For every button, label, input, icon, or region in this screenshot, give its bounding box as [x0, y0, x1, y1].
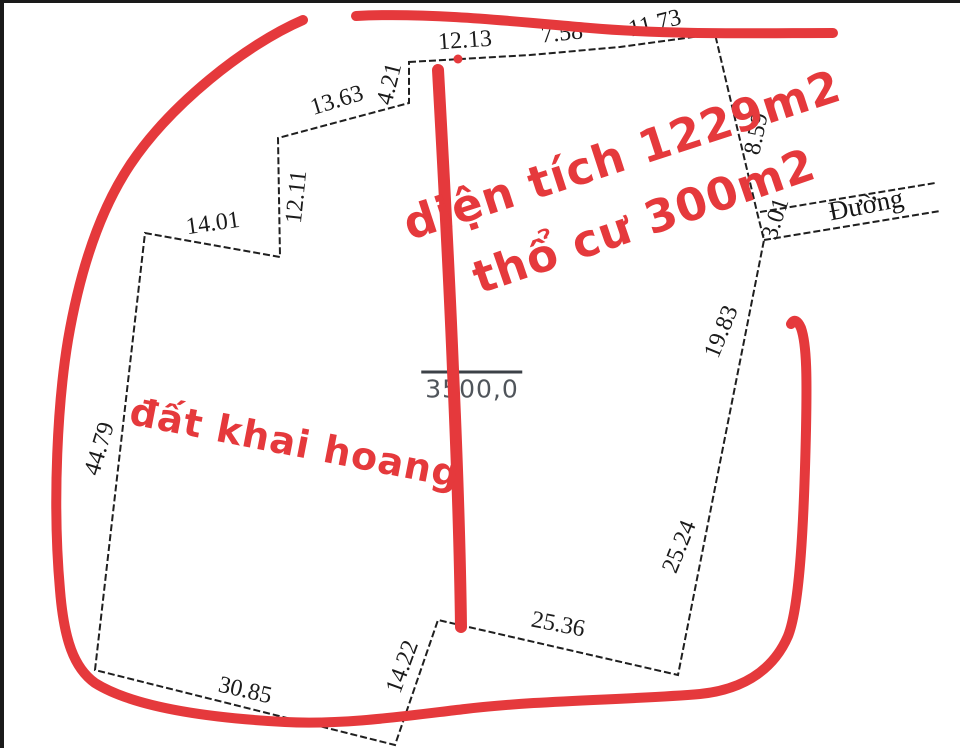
parcel-area-label: 3500,0	[421, 371, 522, 404]
edge-label-nw-slant: 13.63	[307, 80, 367, 122]
survey-point-dot	[454, 55, 463, 64]
road-label: Đường	[826, 183, 906, 228]
edge-label-south: 30.85	[216, 672, 275, 710]
edge-label-top-3: 11.73	[626, 4, 684, 43]
cadastral-sketch: 12.13 7.58 11.73 13.63 4.21 12.11 14.01 …	[0, 0, 960, 748]
edge-label-top-1: 12.13	[437, 26, 493, 57]
highlight-top-stroke	[356, 15, 833, 33]
edge-label-south-east: 25.36	[529, 607, 587, 644]
annotation-reclaimed-land: đất khai hoang	[126, 389, 464, 496]
edge-label-nw-step: 4.21	[372, 60, 408, 107]
edge-label-east-upper: 19.83	[699, 302, 744, 362]
edge-label-south-step: 14.22	[381, 637, 425, 697]
photo-border-left	[0, 0, 4, 748]
edge-label-west-shoulder: 14.01	[184, 207, 241, 241]
edge-label-west: 44.79	[79, 419, 121, 479]
edge-label-east-lower: 25.24	[657, 517, 702, 577]
edge-label-nw-vertical: 12.11	[281, 169, 313, 225]
edge-label-top-2: 7.58	[540, 18, 585, 49]
photo-border-top	[0, 0, 960, 3]
parcel-divider-stroke	[438, 70, 461, 627]
